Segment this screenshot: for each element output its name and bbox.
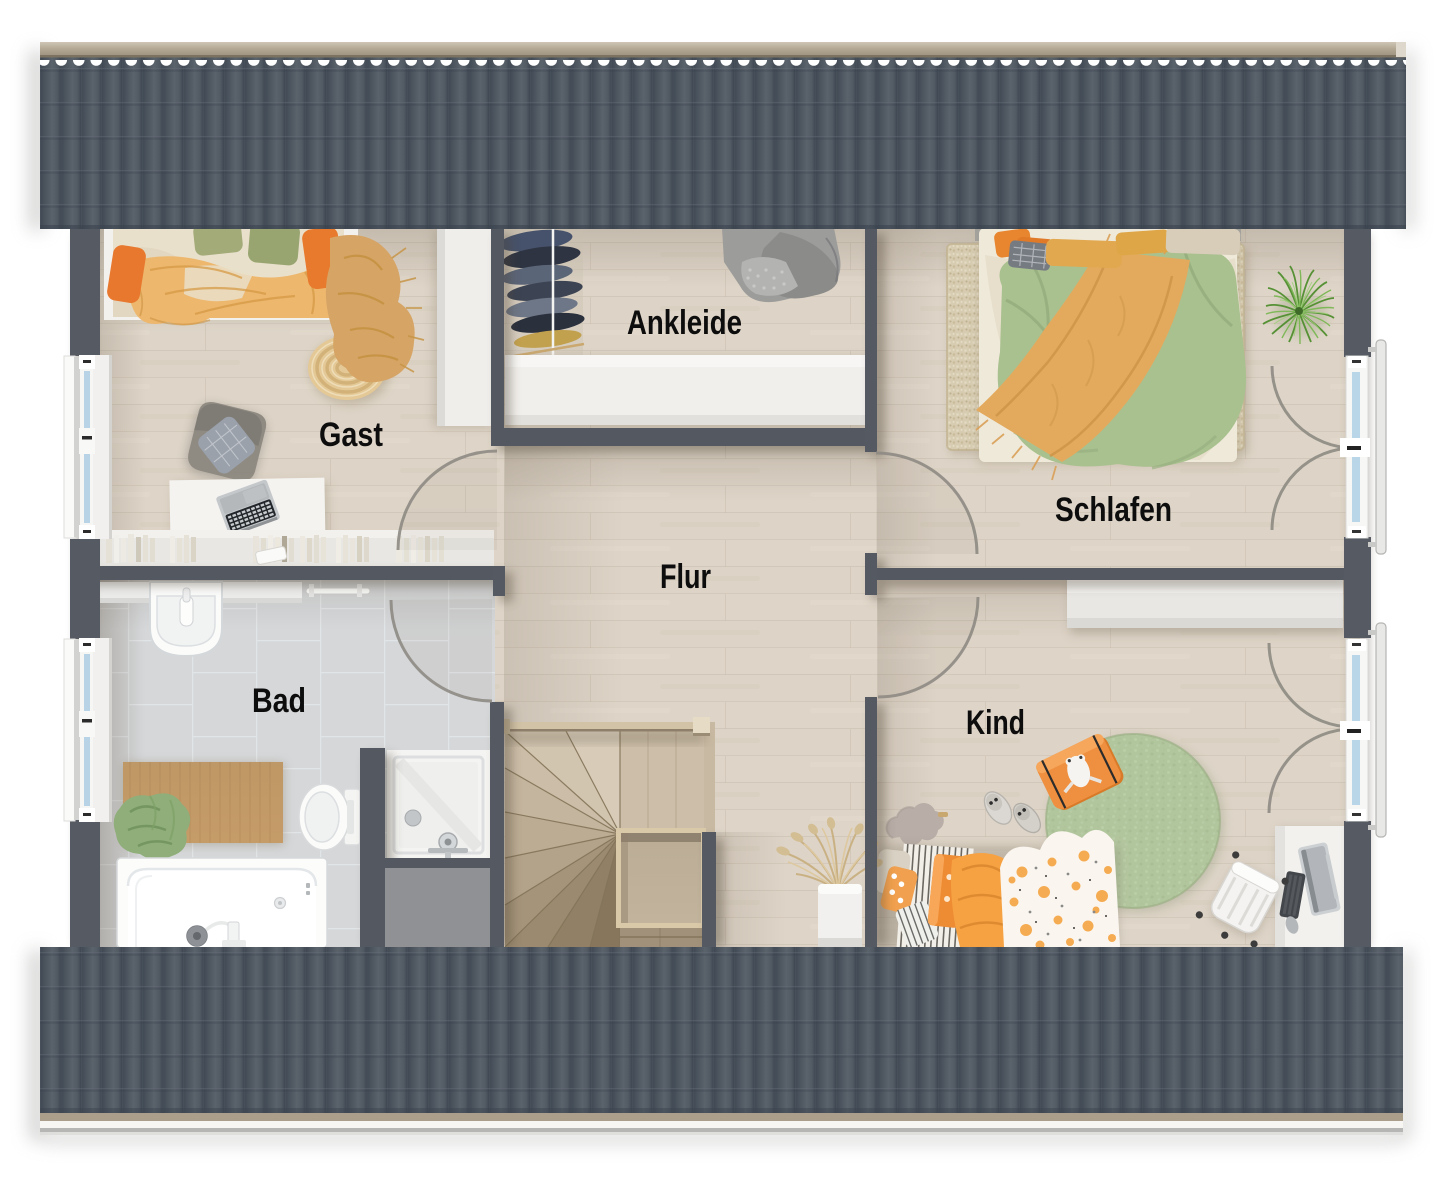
svg-text:Flur: Flur	[660, 558, 711, 596]
svg-text:Ankleide: Ankleide	[627, 304, 742, 342]
svg-text:Gast: Gast	[319, 416, 383, 454]
svg-text:Schlafen: Schlafen	[1055, 491, 1172, 529]
svg-text:Kind: Kind	[966, 704, 1025, 742]
svg-text:Bad: Bad	[252, 682, 306, 720]
